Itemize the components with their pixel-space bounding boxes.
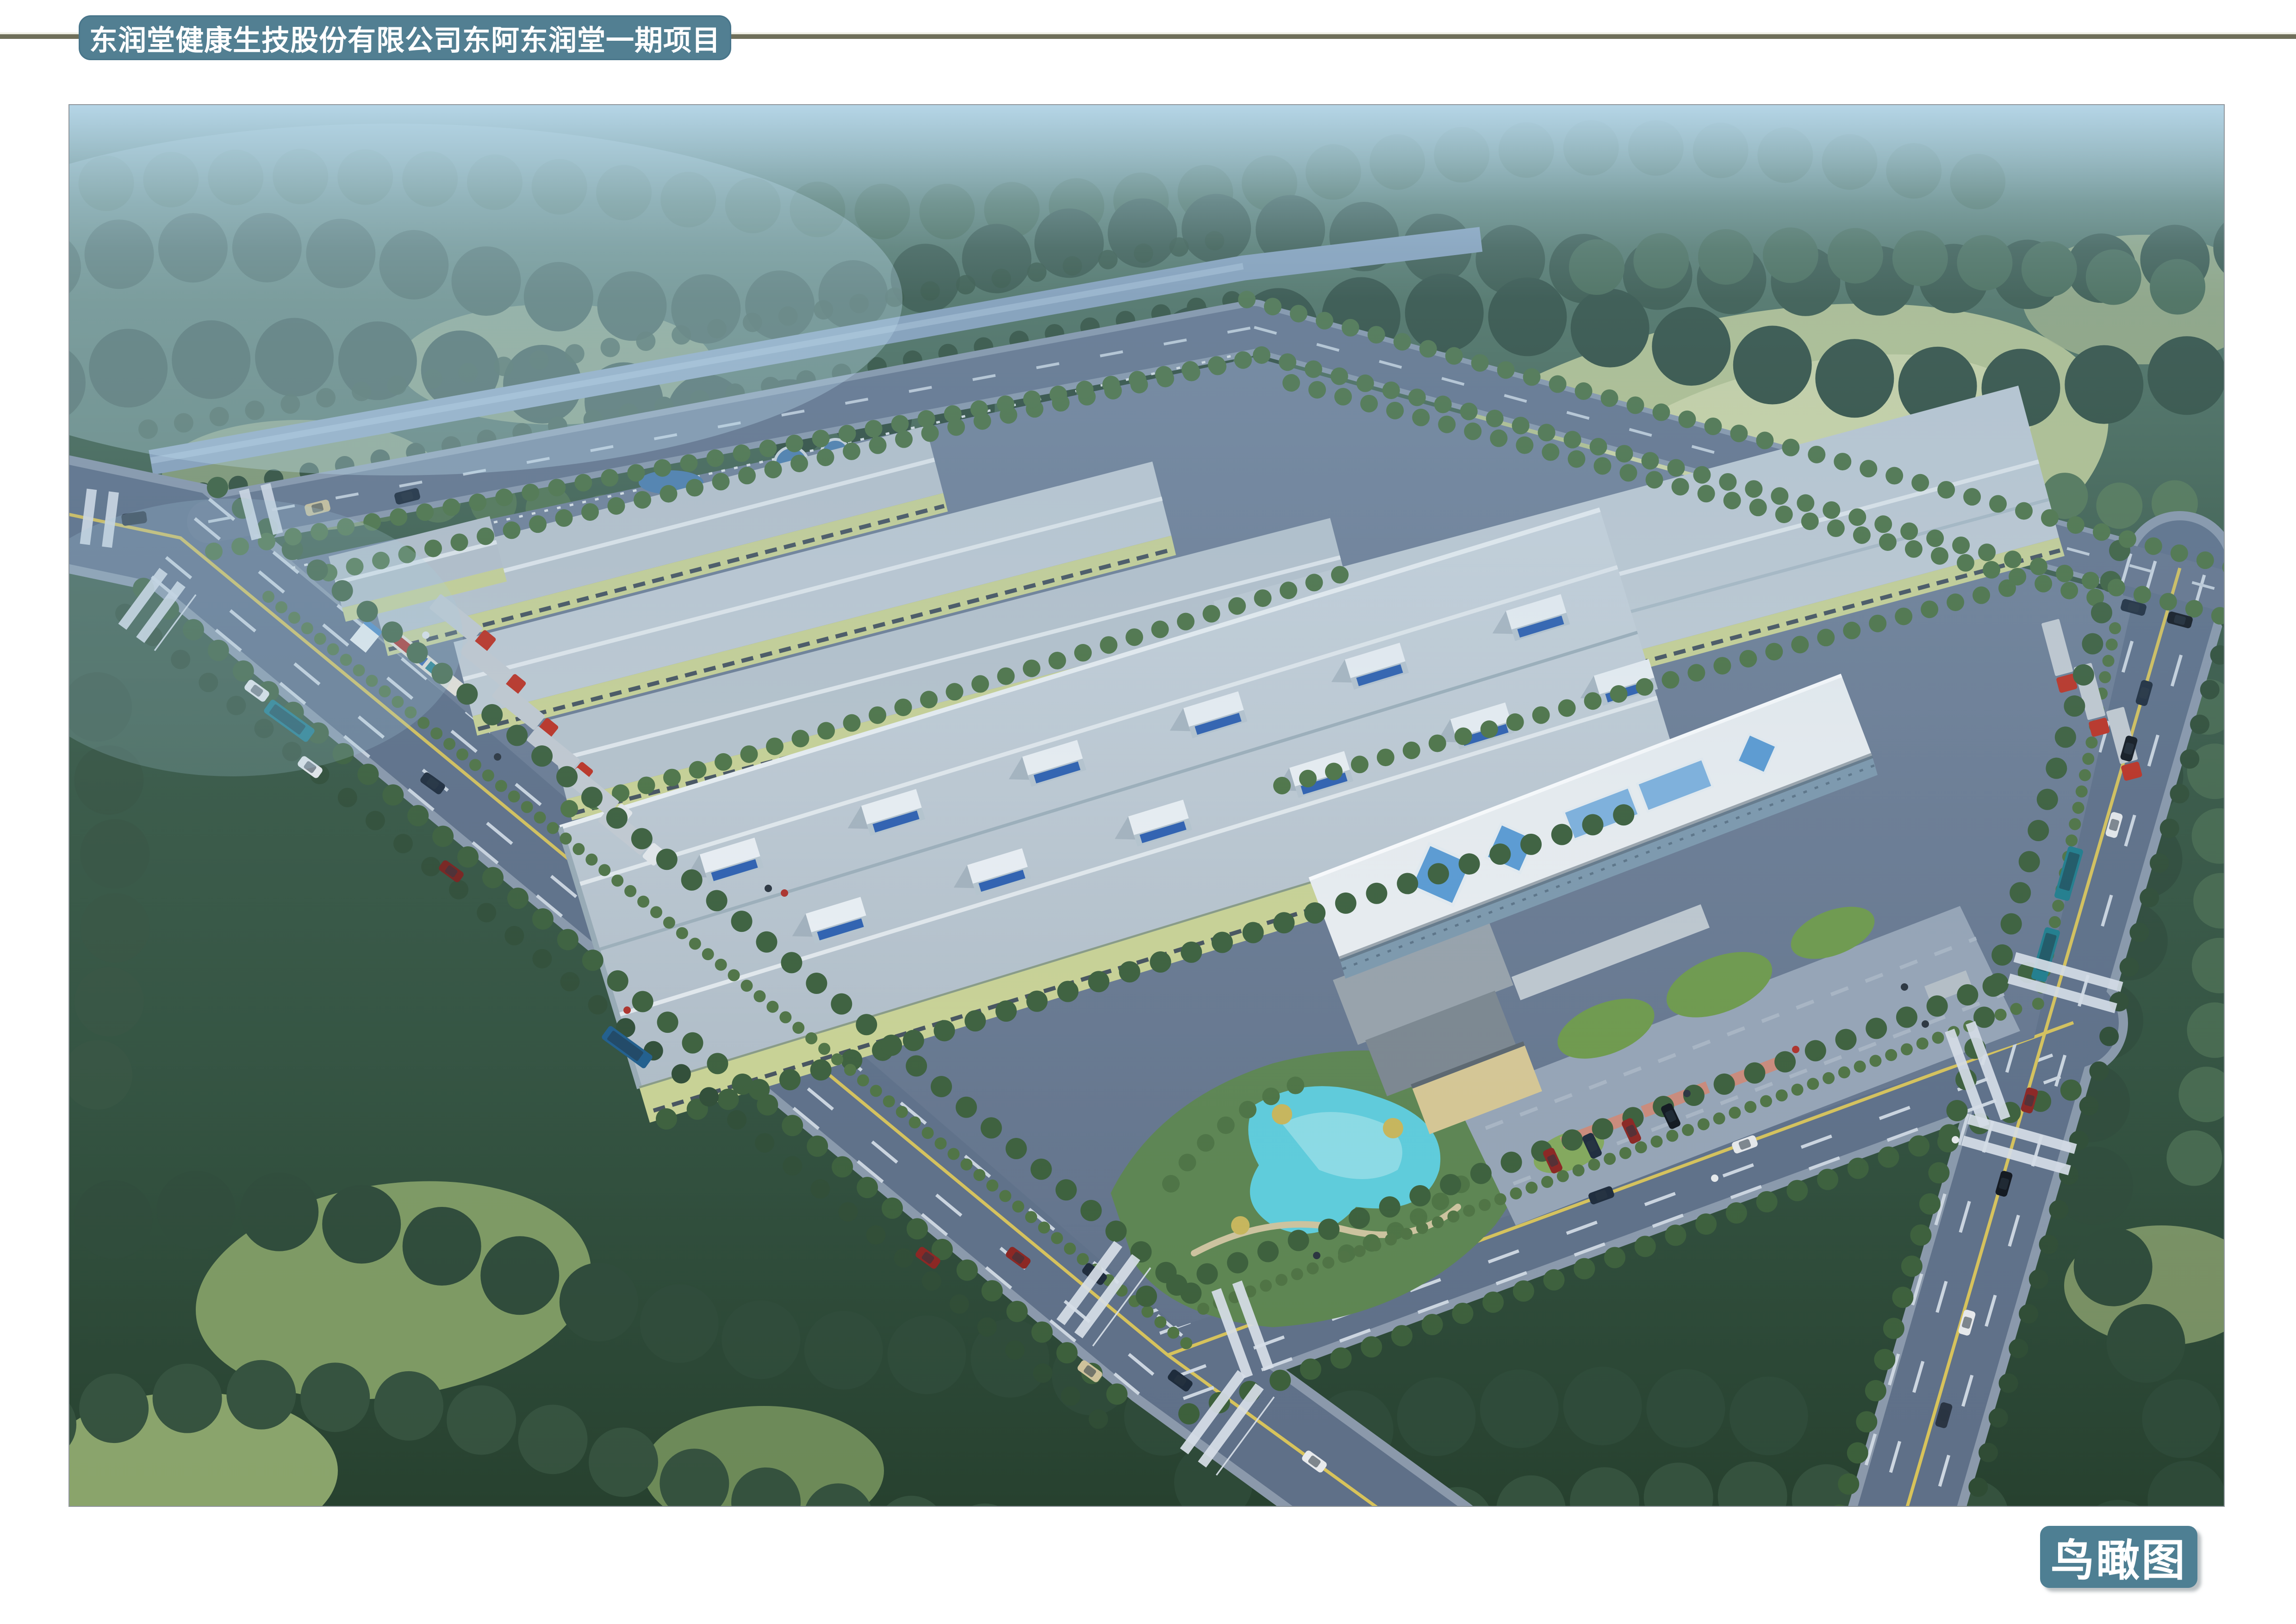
aerial-rendering [69,105,2224,1506]
haze-layer [69,105,2224,1506]
page: { "header": { "title": "东润堂健康生技股份有限公司东阿东… [0,0,2296,1624]
caption-badge: 鸟瞰图 [2040,1526,2197,1588]
project-title-bar: 东润堂健康生技股份有限公司东阿东润堂一期项目 [79,15,731,60]
project-title-text: 东润堂健康生技股份有限公司东阿东润堂一期项目 [89,17,721,58]
rendering-frame [68,104,2225,1507]
caption-text: 鸟瞰图 [2051,1525,2187,1588]
